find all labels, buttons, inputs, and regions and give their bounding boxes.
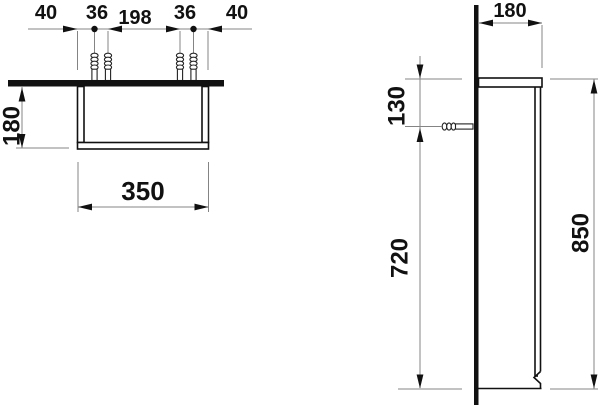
wall-line xyxy=(474,5,479,405)
arrow-up-icon xyxy=(19,88,26,102)
arrow-right-icon xyxy=(528,20,542,27)
arrow-left-icon xyxy=(479,20,493,27)
arrow-down-icon xyxy=(417,375,424,389)
front-width-dimension: 350 xyxy=(78,162,209,212)
side-view: 180 130 720 850 xyxy=(384,0,599,405)
arrow-right-icon xyxy=(166,26,180,33)
top-panel-section xyxy=(479,78,543,87)
side-total-height-dimension: 850 xyxy=(550,79,598,389)
side-depth-dimension: 180 xyxy=(479,0,542,68)
arrow-up-icon xyxy=(591,80,598,94)
arrow-down-icon xyxy=(417,65,424,79)
shelf-structure xyxy=(8,80,224,149)
dim-850-total-height: 850 xyxy=(568,213,595,253)
screw-side-icon xyxy=(442,123,473,130)
screw-icon xyxy=(91,53,98,80)
dimension-dot xyxy=(190,26,196,32)
side-left-dimension-stack: 130 720 xyxy=(384,56,463,389)
dim-36-left: 36 xyxy=(86,2,108,24)
mounting-screws xyxy=(91,53,197,80)
dim-40-right: 40 xyxy=(226,2,248,24)
dim-720-carcass-height: 720 xyxy=(387,238,414,278)
dim-180-depth: 180 xyxy=(493,0,526,22)
arrow-left-icon xyxy=(78,204,92,211)
front-top-chain-dimension: 40 36 198 36 40 xyxy=(28,2,252,70)
arrow-right-icon xyxy=(63,26,78,33)
front-height-dimension: 180 xyxy=(0,87,69,148)
cabinet-profile xyxy=(478,78,542,389)
dim-198: 198 xyxy=(118,7,151,29)
shelf-left-wall xyxy=(78,87,85,143)
screw-icon xyxy=(176,53,183,80)
dim-350-width: 350 xyxy=(121,176,164,206)
arrow-down-icon xyxy=(591,375,598,389)
dim-40-left: 40 xyxy=(35,2,57,24)
screw-icon xyxy=(190,53,197,80)
front-view: 40 36 198 36 40 xyxy=(0,2,252,212)
arrow-right-icon xyxy=(195,204,209,211)
dim-180-height: 180 xyxy=(0,106,26,146)
dim-130-screw-offset: 130 xyxy=(384,86,411,126)
shelf-right-wall xyxy=(202,87,209,143)
arrow-left-icon xyxy=(208,26,222,33)
shelf-top-panel xyxy=(8,80,224,87)
dimension-dot xyxy=(91,26,97,32)
arrow-up-icon xyxy=(417,128,424,142)
dimension-drawing: 40 36 198 36 40 xyxy=(0,0,600,408)
dim-36-right: 36 xyxy=(174,2,196,24)
technical-drawing-canvas: 40 36 198 36 40 xyxy=(0,0,600,408)
screw-icon xyxy=(104,53,111,80)
shelf-bottom-panel xyxy=(78,143,209,150)
